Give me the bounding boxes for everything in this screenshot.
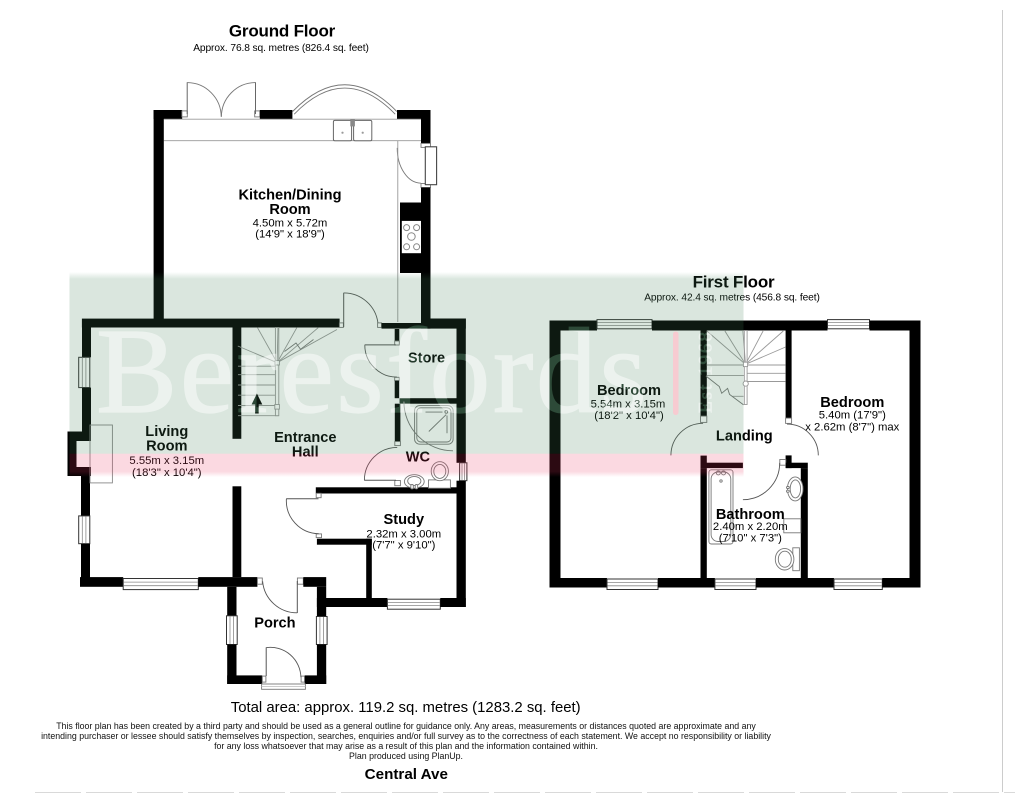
svg-text:This floor plan has been creat: This floor plan has been created by a th… <box>56 721 756 731</box>
svg-text:Study: Study <box>384 512 425 528</box>
svg-text:Approx. 76.8 sq. metres (826.4: Approx. 76.8 sq. metres (826.4 sq. feet) <box>193 43 369 54</box>
svg-text:2.40m x 2.20m: 2.40m x 2.20m <box>713 521 788 533</box>
svg-text:5.40m (17'9"): 5.40m (17'9") <box>819 410 886 422</box>
svg-text:Porch: Porch <box>254 615 295 631</box>
svg-text:Total area: approx. 119.2 sq.: Total area: approx. 119.2 sq. metres (12… <box>231 700 581 716</box>
svg-text:Bedroom: Bedroom <box>820 395 884 411</box>
svg-text:Ground Floor: Ground Floor <box>229 22 336 41</box>
svg-text:Room: Room <box>269 202 310 218</box>
svg-text:for any loss whatsoever that m: for any loss whatsoever that may arise a… <box>214 741 598 751</box>
svg-text:Central Ave: Central Ave <box>365 766 448 783</box>
svg-text:(7'7" x 9'10"): (7'7" x 9'10") <box>372 540 435 552</box>
svg-text:intending purchaser or lessee: intending purchaser or lessee should sat… <box>41 731 771 741</box>
svg-text:2.32m x 3.00m: 2.32m x 3.00m <box>366 528 441 540</box>
svg-text:x 2.62m (8'7") max: x 2.62m (8'7") max <box>805 421 899 433</box>
svg-text:4.50m x 5.72m: 4.50m x 5.72m <box>253 217 328 229</box>
svg-text:(7'10" x 7'3"): (7'10" x 7'3") <box>719 533 782 545</box>
svg-text:Plan produced using PlanUp.: Plan produced using PlanUp. <box>349 751 463 761</box>
svg-text:(14'9" x 18'9"): (14'9" x 18'9") <box>255 229 325 241</box>
